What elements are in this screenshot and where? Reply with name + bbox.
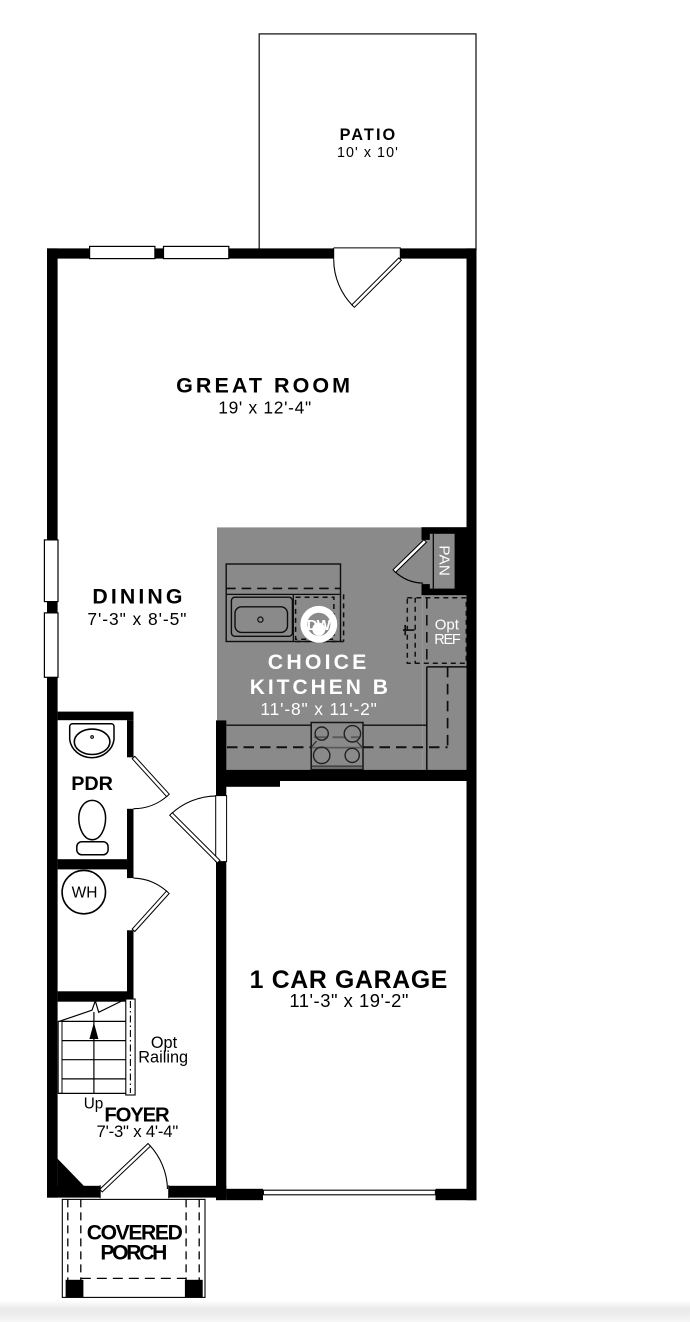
svg-text:PAN: PAN [435, 545, 452, 576]
svg-text:11'-8" x 11'-2": 11'-8" x 11'-2" [260, 699, 376, 719]
svg-text:Railing: Railing [138, 1048, 188, 1066]
svg-text:10' x 10': 10' x 10' [337, 145, 398, 161]
svg-text:DINING: DINING [92, 584, 182, 608]
svg-text:19' x 12'-4": 19' x 12'-4" [218, 398, 311, 418]
svg-text:KITCHEN B: KITCHEN B [250, 676, 388, 699]
svg-text:7'-3" x 4'-4": 7'-3" x 4'-4" [97, 1122, 179, 1141]
svg-text:PDR: PDR [71, 773, 113, 795]
svg-text:GREAT ROOM: GREAT ROOM [176, 374, 350, 398]
svg-text:11'-3" x 19'-2": 11'-3" x 19'-2" [289, 990, 408, 1011]
svg-text:REF: REF [434, 632, 461, 648]
svg-text:WH: WH [72, 885, 98, 902]
svg-text:Up: Up [84, 1095, 104, 1112]
svg-text:7'-3" x 8'-5": 7'-3" x 8'-5" [87, 609, 186, 629]
svg-text:CHOICE: CHOICE [268, 650, 367, 674]
svg-text:PATIO: PATIO [340, 126, 396, 144]
svg-text:PORCH: PORCH [100, 1241, 167, 1264]
